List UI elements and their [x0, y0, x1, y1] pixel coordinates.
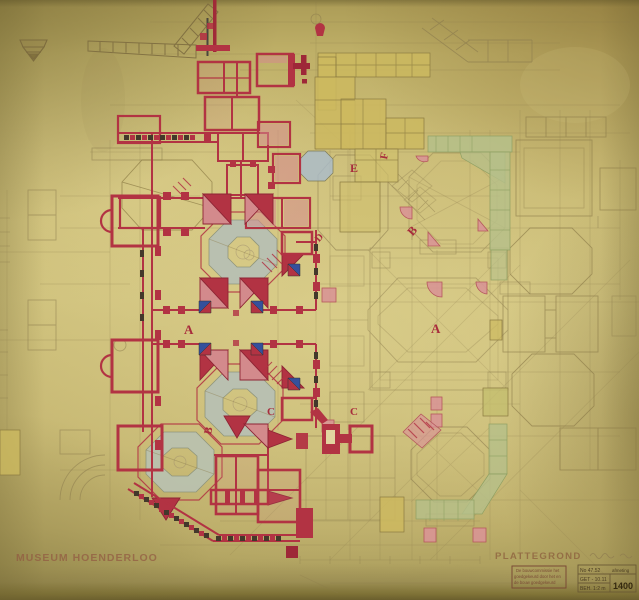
svg-text:No 47.52: No 47.52: [580, 568, 601, 574]
svg-text:A: A: [184, 322, 194, 337]
svg-text:GET - 10.11: GET - 10.11: [580, 577, 607, 583]
svg-text:E: E: [350, 161, 358, 175]
svg-text:C: C: [350, 406, 358, 418]
svg-text:goedgekeurd door het en: goedgekeurd door het en: [514, 574, 561, 579]
svg-text:PLATTEGROND: PLATTEGROND: [495, 551, 582, 562]
svg-text:de bouw goedgekeurd: de bouw goedgekeurd: [514, 580, 556, 585]
svg-text:MUSEUM HOENDERLOO: MUSEUM HOENDERLOO: [16, 552, 158, 564]
svg-text:1400: 1400: [613, 581, 633, 591]
svg-text:De bouwcommissie het: De bouwcommissie het: [516, 568, 560, 573]
svg-text:C: C: [267, 406, 275, 418]
svg-text:A: A: [431, 321, 441, 336]
svg-text:B: B: [202, 425, 216, 436]
svg-text:afmeting: afmeting: [612, 568, 630, 573]
svg-text:BEH. 1:2 m: BEH. 1:2 m: [580, 586, 606, 592]
